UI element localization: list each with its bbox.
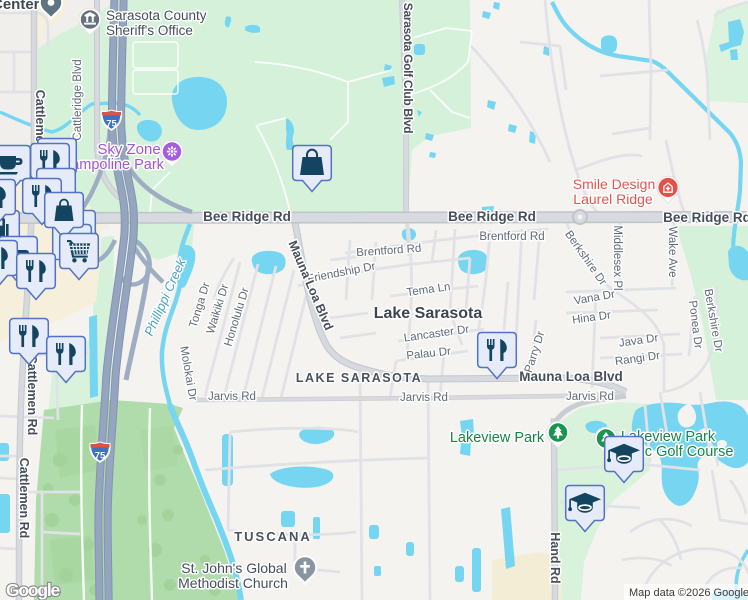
svg-text:Hand Rd: Hand Rd <box>548 532 562 583</box>
svg-text:Google: Google <box>6 580 61 600</box>
svg-text:Cattleridge Blvd: Cattleridge Blvd <box>72 59 84 140</box>
svg-text:Center: Center <box>0 0 40 13</box>
svg-text:Bee Ridge Rd: Bee Ridge Rd <box>663 210 748 225</box>
svg-text:Wake Ave: Wake Ave <box>666 226 678 277</box>
svg-text:Lakeview Park: Lakeview Park <box>450 430 545 446</box>
svg-text:Bee Ridge Rd: Bee Ridge Rd <box>203 209 291 224</box>
svg-text:Middlesex Pl: Middlesex Pl <box>611 225 623 290</box>
svg-text:Laurel Ridge: Laurel Ridge <box>573 191 653 207</box>
svg-text:Jarvis Rd: Jarvis Rd <box>208 391 256 403</box>
svg-text:Cattlemen Rd: Cattlemen Rd <box>25 355 39 436</box>
svg-text:Jarvis Rd: Jarvis Rd <box>566 391 614 403</box>
svg-text:Lake Sarasota: Lake Sarasota <box>374 305 483 322</box>
svg-text:LAKE SARASOTA: LAKE SARASOTA <box>296 371 422 385</box>
svg-text:Sarasota County: Sarasota County <box>106 8 207 23</box>
svg-text:St. John's Global: St. John's Global <box>181 560 286 576</box>
svg-text:75: 75 <box>95 451 106 462</box>
svg-text:TUSCANA: TUSCANA <box>234 529 312 544</box>
svg-text:Cattlemen Rd: Cattlemen Rd <box>17 458 31 539</box>
svg-text:Methodist Church: Methodist Church <box>178 575 288 591</box>
svg-text:Sarasota Golf Club Blvd: Sarasota Golf Club Blvd <box>401 3 415 133</box>
svg-text:Bee Ridge Rd: Bee Ridge Rd <box>448 209 536 224</box>
svg-text:Brentford Rd: Brentford Rd <box>479 231 544 243</box>
svg-text:Smile Design: Smile Design <box>573 176 655 192</box>
svg-text:Map data ©2026 Google: Map data ©2026 Google <box>629 587 748 599</box>
svg-text:Jarvis Rd: Jarvis Rd <box>400 392 448 404</box>
svg-text:75: 75 <box>106 119 117 130</box>
svg-text:Sky Zone: Sky Zone <box>97 141 160 158</box>
svg-text:Sheriff's Office: Sheriff's Office <box>106 23 193 38</box>
